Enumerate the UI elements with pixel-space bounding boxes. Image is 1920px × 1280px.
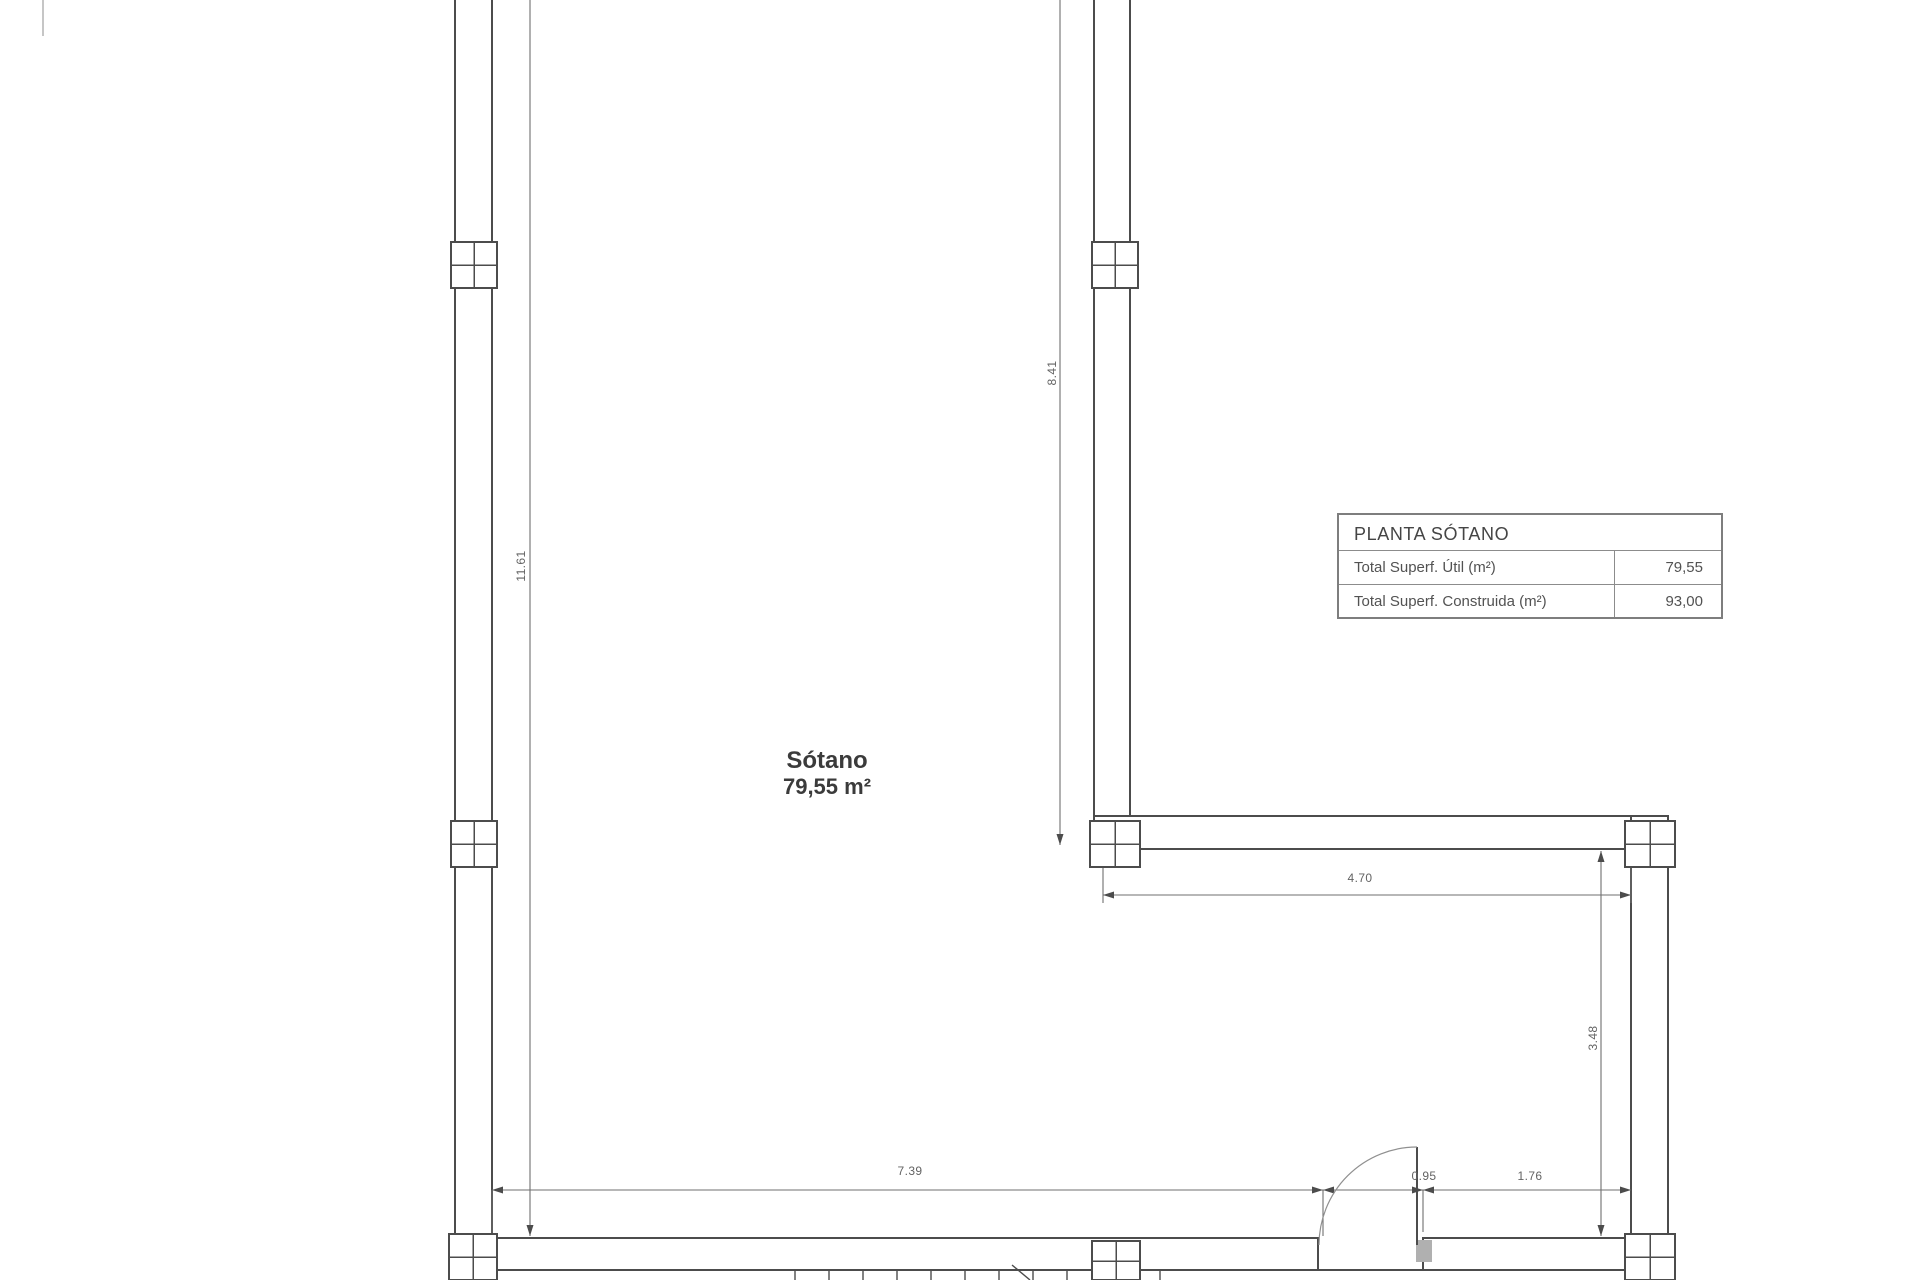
dimension-label-left-height: 11.61 <box>514 550 528 581</box>
door-swing-arc <box>1319 1147 1417 1245</box>
arrow-left-icon <box>1423 1187 1434 1194</box>
wall-inner-horizontal <box>1094 816 1668 849</box>
junction-marker <box>449 1234 497 1280</box>
arrow-right-icon <box>1620 1187 1631 1194</box>
arrow-right-icon <box>1620 892 1631 899</box>
junction-marker <box>451 821 497 867</box>
dimension-label-bottom-right-width: 1.76 <box>1518 1169 1543 1183</box>
walls <box>455 0 1668 1270</box>
room-area: 79,55 m² <box>783 774 871 800</box>
arrow-down-icon <box>1598 1225 1605 1236</box>
legend-title: PLANTA SÓTANO <box>1339 515 1721 551</box>
floor-plan-page: 11.61 8.41 4.70 3.48 7.39 0.95 1.76 Sóta… <box>0 0 1920 1280</box>
legend-row-util: Total Superf. Útil (m²) 79,55 <box>1339 551 1721 584</box>
legend-row-label: Total Superf. Útil (m²) <box>1339 559 1614 576</box>
dimension-arrows <box>492 834 1631 1236</box>
wall-left <box>455 0 492 1270</box>
legend-row-value: 93,00 <box>1614 585 1721 617</box>
wall-bottom-left-segment <box>455 1238 1318 1270</box>
dimension-label-mid-height: 8.41 <box>1045 361 1059 386</box>
arrow-left-icon <box>492 1187 503 1194</box>
legend-row-value: 79,55 <box>1614 551 1721 584</box>
junction-markers <box>449 242 1675 1280</box>
junction-marker <box>451 242 497 288</box>
junction-marker <box>1092 242 1138 288</box>
floor-plan-drawing <box>0 0 1920 1280</box>
arrow-down-icon <box>527 1225 534 1236</box>
arrow-left-icon <box>1103 892 1114 899</box>
legend-row-label: Total Superf. Construida (m²) <box>1339 593 1614 610</box>
legend-row-construida: Total Superf. Construida (m²) 93,00 <box>1339 584 1721 617</box>
dimension-label-upper-width: 4.70 <box>1348 871 1373 885</box>
legend-box: PLANTA SÓTANO Total Superf. Útil (m²) 79… <box>1337 513 1723 619</box>
arrow-left-icon <box>1323 1187 1334 1194</box>
junction-marker <box>1625 821 1675 867</box>
room-label: Sótano 79,55 m² <box>783 748 871 800</box>
room-name: Sótano <box>783 748 871 774</box>
arrow-up-icon <box>1598 851 1605 862</box>
dimension-label-door-width: 0.95 <box>1412 1169 1437 1183</box>
door <box>1319 1147 1432 1262</box>
wall-middle <box>1094 0 1130 849</box>
door-jamb-block <box>1416 1240 1432 1262</box>
wall-right <box>1631 816 1668 1270</box>
junction-marker <box>1625 1234 1675 1280</box>
dimension-label-bottom-width: 7.39 <box>898 1164 923 1178</box>
junction-marker <box>1090 821 1140 867</box>
dimension-label-right-height: 3.48 <box>1586 1026 1600 1051</box>
arrow-down-icon <box>1057 834 1064 845</box>
arrow-right-icon <box>1312 1187 1323 1194</box>
junction-marker <box>1092 1241 1140 1280</box>
